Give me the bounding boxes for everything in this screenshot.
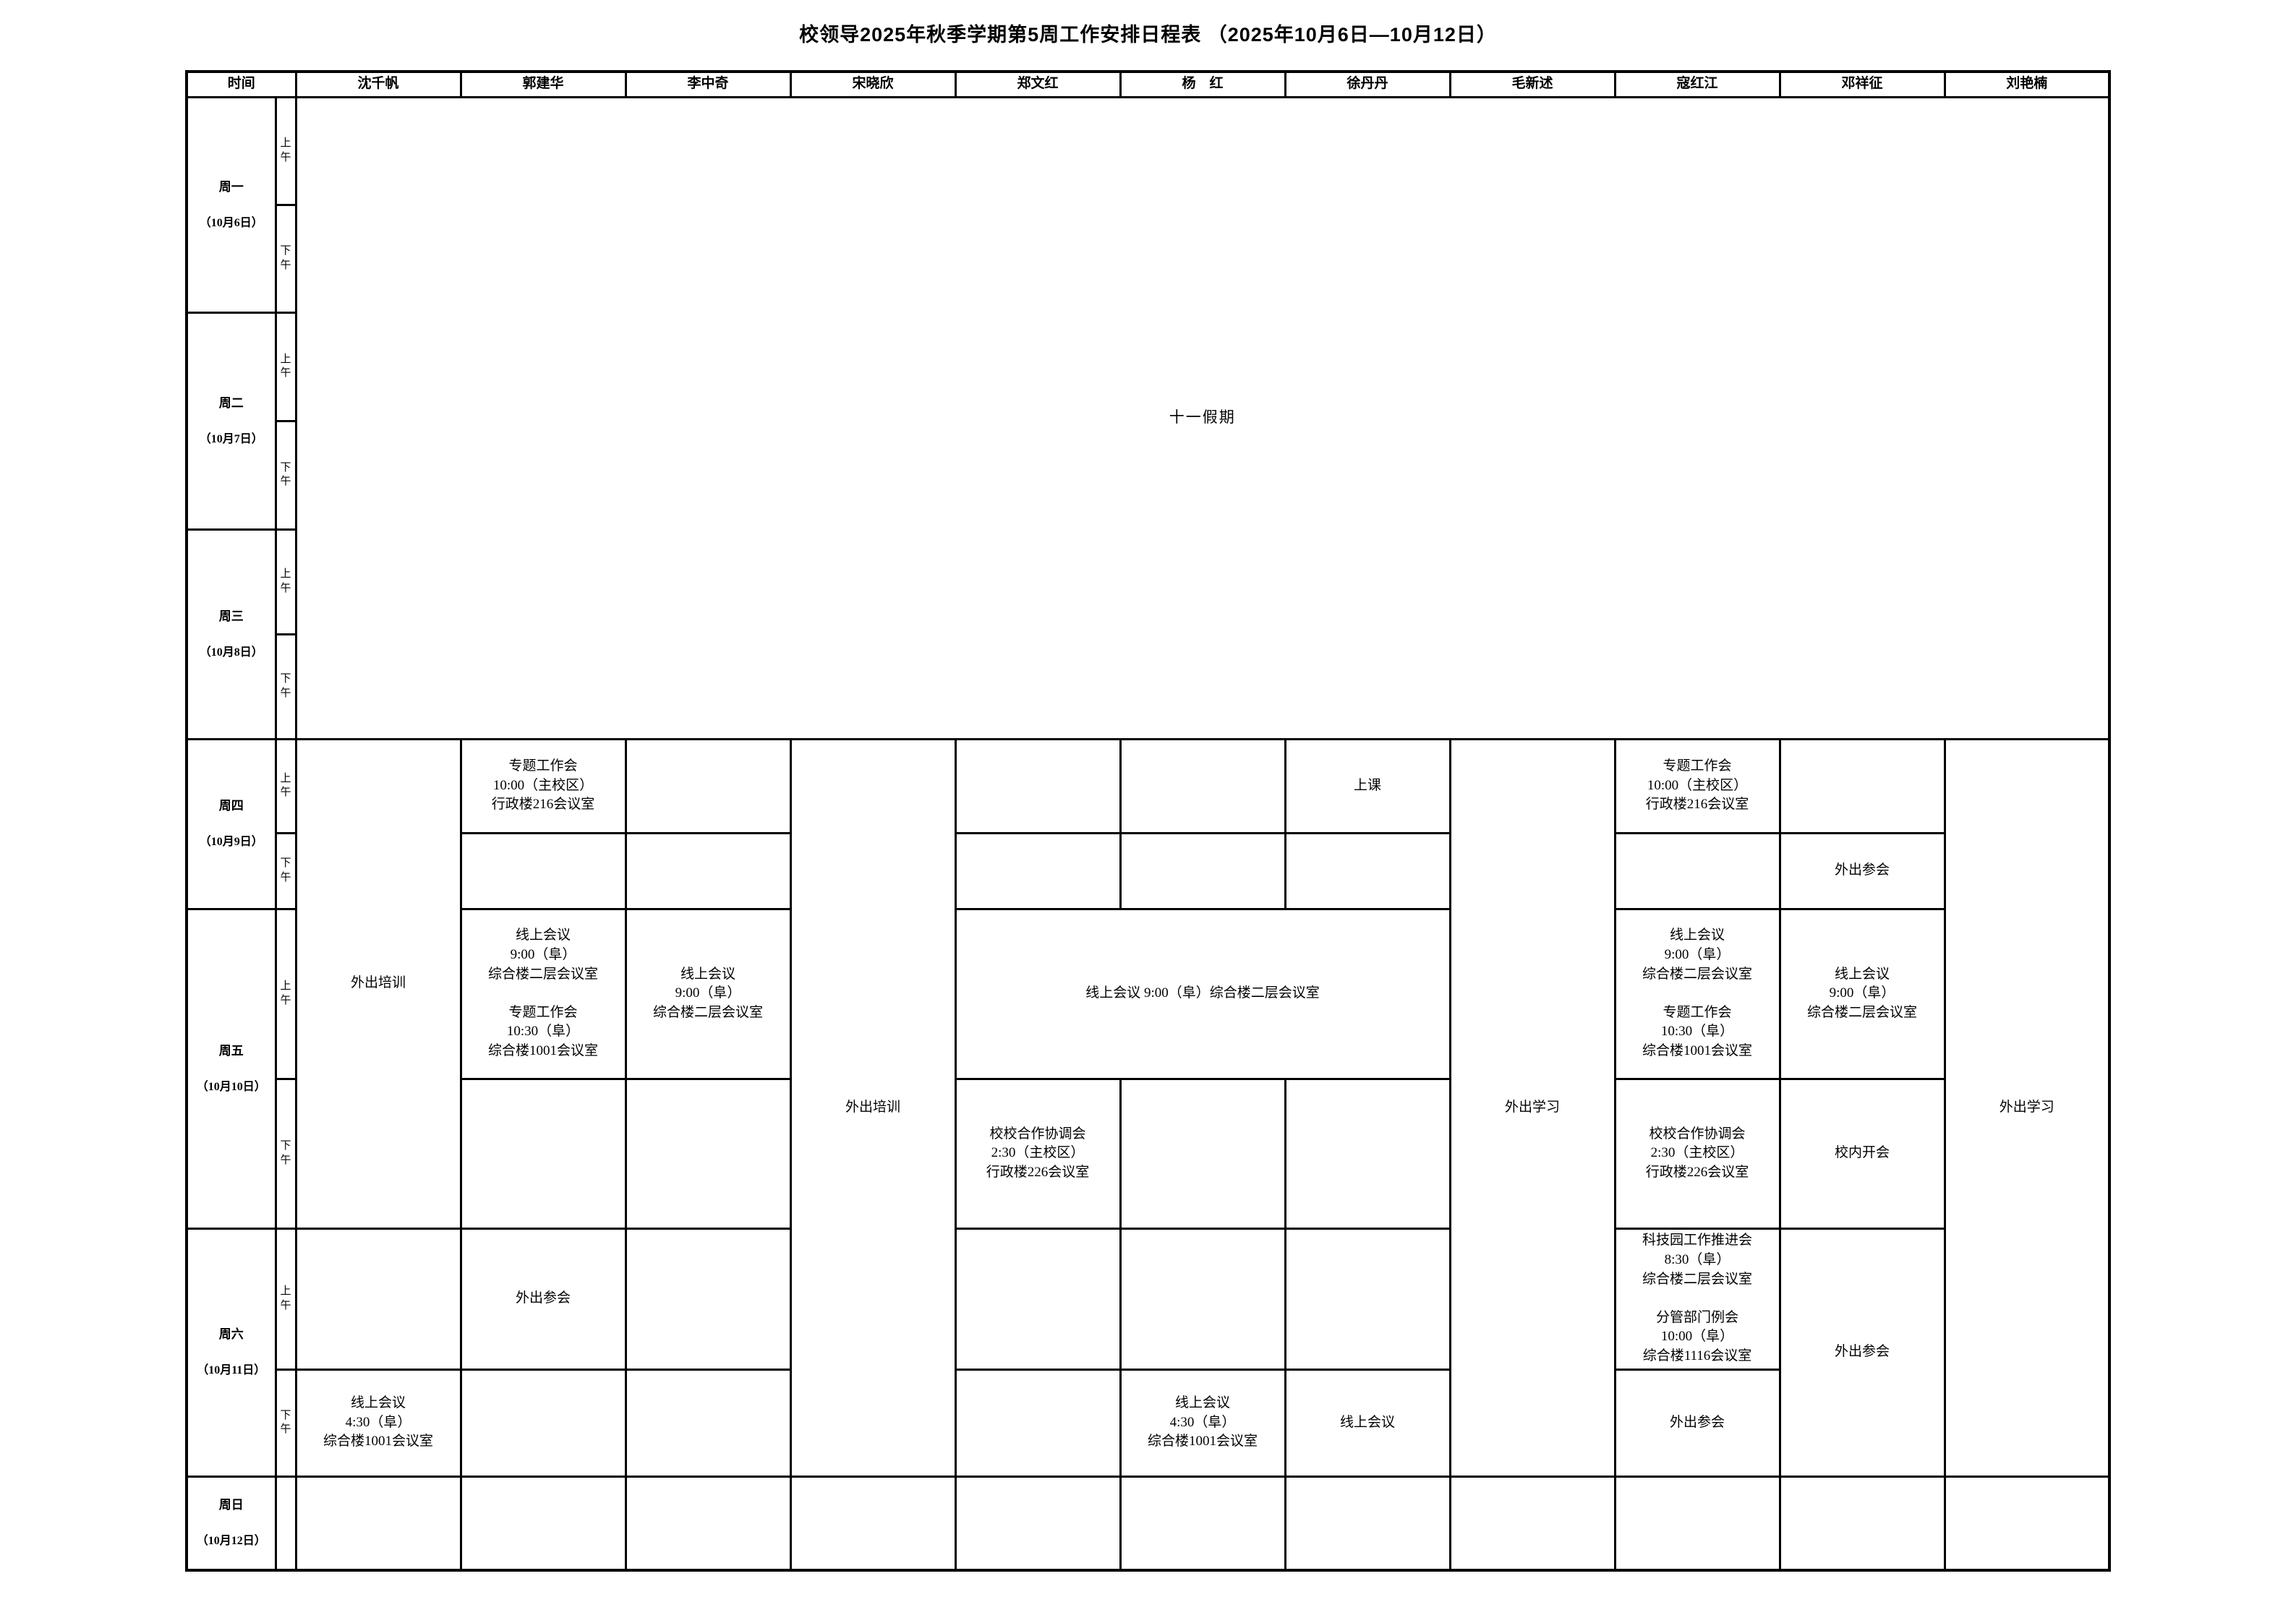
cell-sat-deng-offsite-meeting: 外出参会 [1780,1228,1945,1476]
cell-thu-sat-liu-offsite-study: 外出学习 [1945,739,2109,1476]
cell-sat-am-xu-empty [1285,1228,1450,1369]
period-thu-am: 上午 [276,739,296,833]
cell-sun-mao-empty [1450,1476,1615,1570]
period-wed-am: 上午 [276,529,296,634]
day-label-fri: 周五 （10月10日） [187,909,276,1228]
day-date: （10月6日） [188,215,275,232]
cell-sun-xu-empty [1285,1476,1450,1570]
cell-thu-pm-xu-empty [1285,833,1450,909]
cell-sat-am-shen-empty [296,1228,461,1369]
cell-thu-am-zheng-empty [955,739,1120,833]
period-tue-pm: 下午 [276,421,296,529]
header-person-song: 宋晓欣 [790,72,955,97]
cell-thu-pm-deng-offsite-meeting: 外出参会 [1780,833,1945,909]
period-wed-pm: 下午 [276,634,296,739]
cell-thu-am-yang-empty [1120,739,1285,833]
header-person-zheng: 郑文红 [955,72,1120,97]
row-sat-am: 周六 （10月11日） 上午 外出参会 科技园工作推进会 8:30（阜） 综合楼… [187,1228,2109,1369]
row-thu-am: 周四 （10月9日） 上午 外出培训 专题工作会 10:00（主校区） 行政楼2… [187,739,2109,833]
header-row: 时间 沈千帆 郭建华 李中奇 宋晓欣 郑文红 杨 红 徐丹丹 毛新述 寇红江 邓… [187,72,2109,97]
cell-sat-pm-guo-empty [461,1369,626,1476]
cell-sun-song-empty [790,1476,955,1570]
cell-fri-pm-deng-campus-meeting: 校内开会 [1780,1079,1945,1228]
cell-sun-li-empty [626,1476,790,1570]
row-fri-pm: 下午 校校合作协调会 2:30（主校区） 行政楼226会议室 校校合作协调会 2… [187,1079,2109,1228]
cell-sun-zheng-empty [955,1476,1120,1570]
period-sun-empty [276,1476,296,1570]
day-date: （10月7日） [188,431,275,448]
day-label-sun: 周日 （10月12日） [187,1476,276,1570]
day-name: 周一 [188,178,275,197]
header-person-liu: 刘艳楠 [1945,72,2109,97]
header-person-deng: 邓祥征 [1780,72,1945,97]
cell-sat-pm-shen-online-meeting: 线上会议 4:30（阜） 综合楼1001会议室 [296,1369,461,1476]
cell-sat-am-li-empty [626,1228,790,1369]
period-fri-pm: 下午 [276,1079,296,1228]
header-person-mao: 毛新述 [1450,72,1615,97]
cell-thu-am-guo-special-meeting: 专题工作会 10:00（主校区） 行政楼216会议室 [461,739,626,833]
cell-fri-pm-guo-empty [461,1079,626,1228]
cell-sat-pm-zheng-empty [955,1369,1120,1476]
cell-sat-am-zheng-empty [955,1228,1120,1369]
cell-fri-am-deng-online-meeting: 线上会议 9:00（阜） 综合楼二层会议室 [1780,909,1945,1079]
period-mon-am: 上午 [276,97,296,205]
day-name: 周二 [188,394,275,413]
day-label-mon: 周一 （10月6日） [187,97,276,312]
day-name: 周六 [188,1325,275,1344]
cell-fri-am-guo-online-and-special-meeting: 线上会议 9:00（阜） 综合楼二层会议室 专题工作会 10:30（阜） 综合楼… [461,909,626,1079]
cell-thu-sat-mao-offsite-study: 外出学习 [1450,739,1615,1476]
cell-thu-am-kou-special-meeting: 专题工作会 10:00（主校区） 行政楼216会议室 [1615,739,1780,833]
header-person-kou: 寇红江 [1615,72,1780,97]
cell-thu-am-xu-class: 上课 [1285,739,1450,833]
cell-fri-pm-zheng-cooperation-meeting: 校校合作协调会 2:30（主校区） 行政楼226会议室 [955,1079,1120,1228]
cell-sat-pm-xu-online-meeting: 线上会议 [1285,1369,1450,1476]
page-title: 校领导2025年秋季学期第5周工作安排日程表 （2025年10月6日—10月12… [0,19,2296,47]
cell-sun-kou-empty [1615,1476,1780,1570]
cell-fri-am-zheng-yang-xu-online-meeting: 线上会议 9:00（阜）综合楼二层会议室 [955,909,1450,1079]
day-date: （10月11日） [188,1362,275,1379]
day-label-sat: 周六 （10月11日） [187,1228,276,1476]
cell-thu-sat-song-offsite-training: 外出培训 [790,739,955,1476]
period-fri-am: 上午 [276,909,296,1079]
cell-sat-pm-li-empty [626,1369,790,1476]
period-sat-pm: 下午 [276,1369,296,1476]
day-name: 周日 [188,1496,275,1515]
day-label-tue: 周二 （10月7日） [187,312,276,529]
cell-thu-pm-zheng-empty [955,833,1120,909]
cell-thu-am-deng-empty [1780,739,1945,833]
day-label-wed: 周三 （10月8日） [187,529,276,739]
schedule-table: 时间 沈千帆 郭建华 李中奇 宋晓欣 郑文红 杨 红 徐丹丹 毛新述 寇红江 邓… [185,70,2111,1572]
cell-fri-am-li-online-meeting: 线上会议 9:00（阜） 综合楼二层会议室 [626,909,790,1079]
day-date: （10月8日） [188,644,275,661]
cell-sun-deng-empty [1780,1476,1945,1570]
header-person-guo: 郭建华 [461,72,626,97]
day-date: （10月9日） [188,834,275,851]
cell-holiday-block: 十一假期 [296,97,2109,739]
period-tue-am: 上午 [276,312,296,421]
cell-thu-fri-shen-offsite-training: 外出培训 [296,739,461,1228]
cell-sat-pm-yang-online-meeting: 线上会议 4:30（阜） 综合楼1001会议室 [1120,1369,1285,1476]
period-sat-am: 上午 [276,1228,296,1369]
cell-sun-guo-empty [461,1476,626,1570]
period-mon-pm: 下午 [276,205,296,312]
cell-sun-liu-empty [1945,1476,2109,1570]
header-person-li: 李中奇 [626,72,790,97]
header-time: 时间 [187,72,296,97]
day-name: 周三 [188,607,275,626]
row-sun: 周日 （10月12日） [187,1476,2109,1570]
cell-thu-pm-yang-empty [1120,833,1285,909]
row-fri-am: 周五 （10月10日） 上午 线上会议 9:00（阜） 综合楼二层会议室 专题工… [187,909,2109,1079]
row-thu-pm: 下午 外出参会 [187,833,2109,909]
cell-fri-pm-kou-cooperation-meeting: 校校合作协调会 2:30（主校区） 行政楼226会议室 [1615,1079,1780,1228]
cell-sat-am-yang-empty [1120,1228,1285,1369]
cell-thu-am-li-empty [626,739,790,833]
cell-thu-pm-guo-empty [461,833,626,909]
day-name: 周四 [188,797,275,815]
day-name: 周五 [188,1042,275,1061]
day-date: （10月12日） [188,1533,275,1550]
cell-sat-am-kou-techpark-and-dept-meeting: 科技园工作推进会 8:30（阜） 综合楼二层会议室 分管部门例会 10:00（阜… [1615,1228,1780,1369]
cell-thu-pm-li-empty [626,833,790,909]
cell-thu-pm-kou-empty [1615,833,1780,909]
header-person-shen: 沈千帆 [296,72,461,97]
cell-sat-am-guo-offsite-meeting: 外出参会 [461,1228,626,1369]
header-person-yang: 杨 红 [1120,72,1285,97]
cell-sun-yang-empty [1120,1476,1285,1570]
cell-sun-shen-empty [296,1476,461,1570]
cell-fri-pm-xu-empty [1285,1079,1450,1228]
cell-fri-pm-li-empty [626,1079,790,1228]
cell-sat-pm-kou-offsite-meeting: 外出参会 [1615,1369,1780,1476]
cell-fri-pm-yang-empty [1120,1079,1285,1228]
day-label-thu: 周四 （10月9日） [187,739,276,909]
day-date: （10月10日） [188,1079,275,1096]
row-mon-am: 周一 （10月6日） 上午 十一假期 [187,97,2109,205]
cell-fri-am-kou-online-and-special-meeting: 线上会议 9:00（阜） 综合楼二层会议室 专题工作会 10:30（阜） 综合楼… [1615,909,1780,1079]
header-person-xu: 徐丹丹 [1285,72,1450,97]
period-thu-pm: 下午 [276,833,296,909]
